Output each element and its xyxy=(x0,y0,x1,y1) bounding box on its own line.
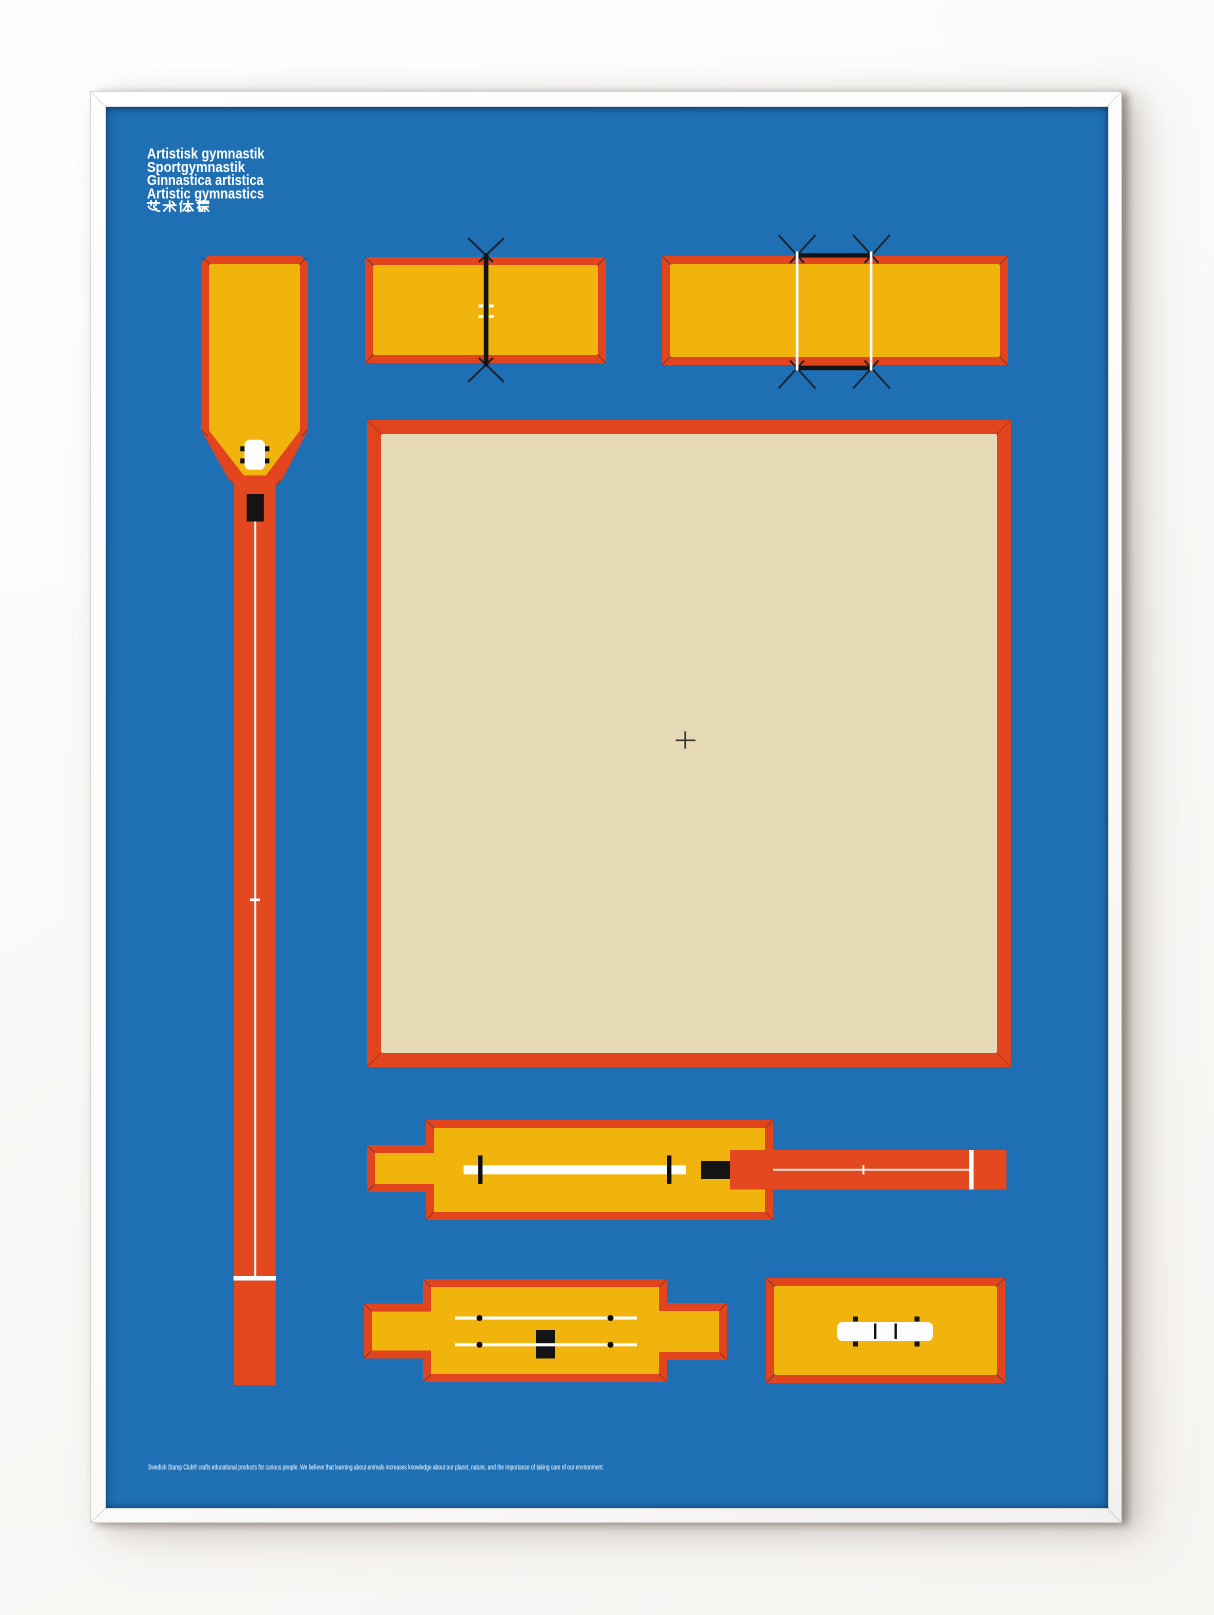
svg-text:Artistic gymnastics: Artistic gymnastics xyxy=(147,187,264,203)
svg-text:Swedish Stamp Club® crafts edu: Swedish Stamp Club® crafts educational p… xyxy=(148,1463,604,1472)
